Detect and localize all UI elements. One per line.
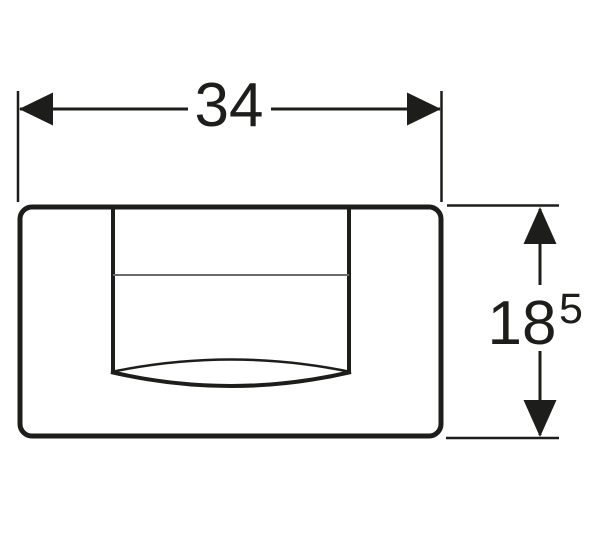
- width-dimension-label: 34: [195, 71, 264, 140]
- technical-drawing-canvas: 34 18 5: [0, 0, 600, 551]
- height-dimension-superscript: 5: [559, 285, 583, 333]
- button-lens-upper-curve: [111, 360, 351, 373]
- flush-plate-dimension-drawing: 34 18 5: [0, 0, 600, 551]
- height-dimension: 18 5: [446, 206, 583, 439]
- height-arrowhead-down-icon: [524, 400, 557, 437]
- width-arrowhead-right-icon: [407, 93, 441, 126]
- width-arrowhead-left-icon: [19, 93, 53, 126]
- height-dimension-label: 18: [488, 289, 557, 358]
- plate-outline: [20, 207, 441, 436]
- button-lens-lower-curve: [111, 372, 351, 386]
- width-dimension: 34: [18, 71, 442, 202]
- height-arrowhead-up-icon: [524, 207, 557, 244]
- flush-plate: [20, 207, 441, 436]
